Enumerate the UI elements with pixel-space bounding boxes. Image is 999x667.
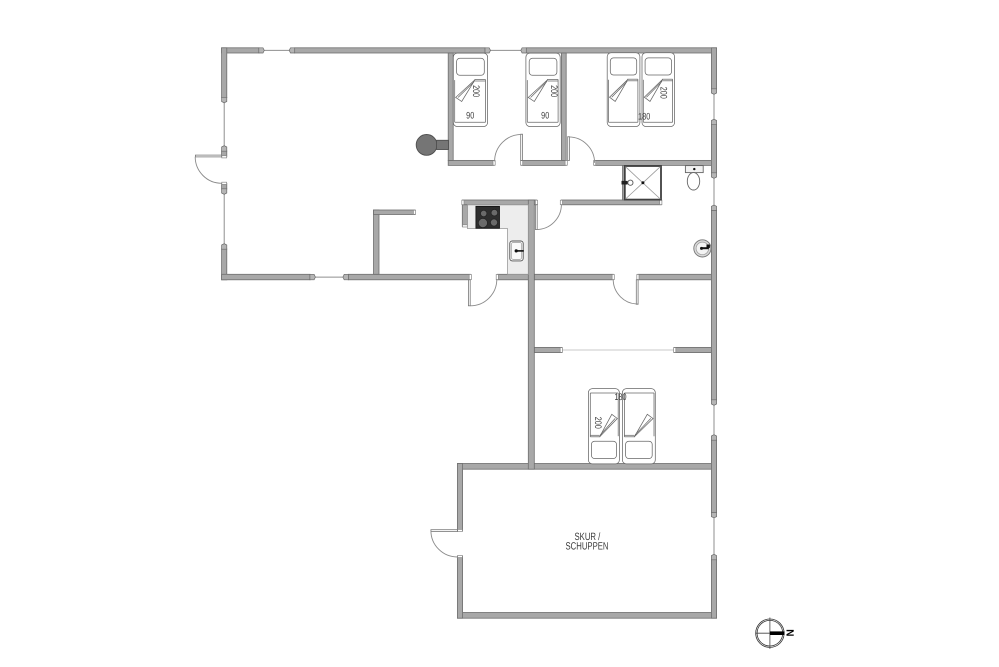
svg-text:90: 90 bbox=[466, 111, 474, 122]
svg-text:200: 200 bbox=[470, 85, 481, 97]
svg-text:200: 200 bbox=[658, 87, 669, 99]
svg-text:180: 180 bbox=[638, 112, 650, 123]
svg-text:90: 90 bbox=[541, 111, 549, 122]
svg-text:N: N bbox=[784, 629, 796, 636]
svg-text:200: 200 bbox=[592, 417, 603, 429]
svg-text:180: 180 bbox=[614, 392, 626, 403]
svg-text:200: 200 bbox=[548, 85, 559, 97]
svg-text:SCHUPPEN: SCHUPPEN bbox=[566, 541, 609, 553]
